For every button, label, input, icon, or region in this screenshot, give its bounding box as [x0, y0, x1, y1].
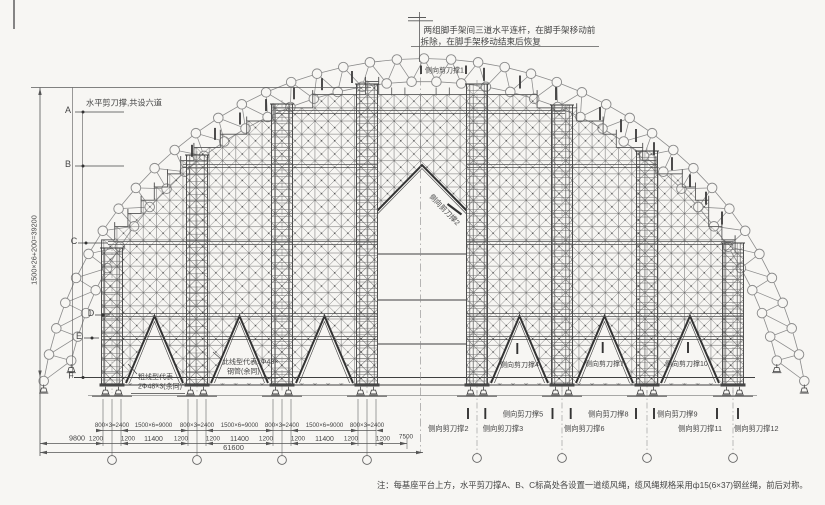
svg-text:1500×26+200=39200: 1500×26+200=39200 — [30, 215, 39, 285]
svg-text:800×3=2400: 800×3=2400 — [350, 422, 385, 429]
svg-text:F: F — [68, 371, 74, 381]
svg-text:11400: 11400 — [230, 436, 249, 443]
svg-text:两组脚手架间三道水平连杆，在脚手架移动前: 两组脚手架间三道水平连杆，在脚手架移动前 — [424, 24, 596, 35]
svg-text:1200: 1200 — [376, 436, 391, 443]
svg-text:1200: 1200 — [89, 436, 104, 443]
svg-text:侧向剪刀撑6: 侧向剪刀撑6 — [564, 424, 605, 433]
svg-text:1200: 1200 — [206, 436, 221, 443]
svg-text:侧向剪刀撑4: 侧向剪刀撑4 — [500, 360, 539, 369]
svg-text:拆除，在脚手架移动结束后恢复: 拆除，在脚手架移动结束后恢复 — [421, 36, 542, 47]
svg-text:D: D — [88, 308, 95, 318]
svg-text:侧向剪刀撑5: 侧向剪刀撑5 — [503, 410, 544, 419]
svg-text:侧向剪刀撑9: 侧向剪刀撑9 — [657, 410, 698, 419]
svg-text:A: A — [65, 105, 71, 115]
svg-text:水平剪刀撑,共设六道: 水平剪刀撑,共设六道 — [86, 98, 162, 108]
svg-text:800×3=2400: 800×3=2400 — [95, 422, 130, 429]
svg-text:粗线型代表: 粗线型代表 — [138, 372, 173, 381]
svg-text:1500×6=9000: 1500×6=9000 — [135, 422, 173, 429]
svg-text:侧向剪刀撑1: 侧向剪刀撑1 — [425, 66, 464, 75]
svg-text:C: C — [71, 236, 78, 246]
svg-text:800×3=2400: 800×3=2400 — [265, 422, 300, 429]
svg-text:800×3=2400: 800×3=2400 — [180, 422, 215, 429]
svg-text:B: B — [65, 159, 71, 169]
svg-text:钢管(余同): 钢管(余同) — [227, 367, 260, 376]
svg-text:11400: 11400 — [144, 436, 163, 443]
svg-text:侧向剪刀撑2: 侧向剪刀撑2 — [428, 424, 469, 433]
svg-text:侧向剪刀撑10: 侧向剪刀撑10 — [665, 359, 708, 368]
svg-text:7500: 7500 — [399, 434, 414, 441]
svg-text:侧向剪刀撑7: 侧向剪刀撑7 — [585, 359, 624, 368]
svg-text:此线型代表1Φ48×: 此线型代表1Φ48× — [222, 357, 278, 366]
svg-text:1200: 1200 — [344, 436, 359, 443]
svg-text:侧向剪刀撑8: 侧向剪刀撑8 — [588, 410, 629, 419]
svg-text:1500×6=9000: 1500×6=9000 — [221, 422, 259, 429]
svg-text:1200: 1200 — [259, 436, 274, 443]
svg-text:1500×6=9000: 1500×6=9000 — [306, 422, 344, 429]
svg-text:9800: 9800 — [69, 434, 85, 443]
svg-text:注：每基座平台上方，水平剪刀撑A、B、C标高处各设置一道缆风: 注：每基座平台上方，水平剪刀撑A、B、C标高处各设置一道缆风绳，缆风绳规格采用ф… — [377, 480, 808, 490]
svg-text:1200: 1200 — [174, 436, 189, 443]
svg-text:侧向剪刀撑11: 侧向剪刀撑11 — [678, 424, 722, 433]
svg-text:1200: 1200 — [291, 436, 306, 443]
svg-text:2Φ48×3(余同): 2Φ48×3(余同) — [138, 382, 182, 391]
svg-text:61600: 61600 — [223, 443, 244, 452]
svg-text:侧向剪刀撑3: 侧向剪刀撑3 — [483, 424, 524, 433]
svg-text:11400: 11400 — [315, 436, 334, 443]
svg-text:侧向剪刀撑12: 侧向剪刀撑12 — [734, 424, 779, 433]
svg-text:E: E — [76, 331, 82, 341]
svg-text:1200: 1200 — [121, 436, 136, 443]
